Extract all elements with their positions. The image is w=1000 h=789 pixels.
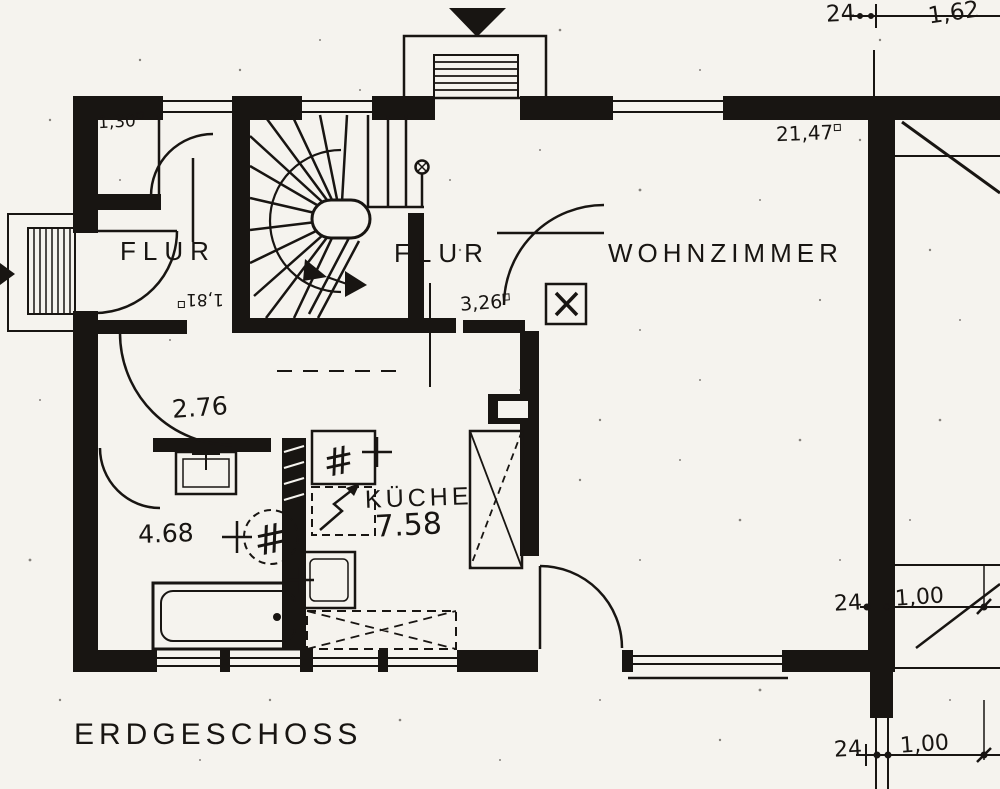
svg-text:#: # [318,437,358,487]
floor-plan-drawing: # # [0,0,1000,789]
side-entrance-porch [0,214,75,331]
room-label-flur-left: FLUR [120,236,216,267]
flue-marker-box [546,284,586,324]
sqm-mark [136,112,143,119]
dim-text-right-span: 1,00 [894,583,945,611]
room-label-wohnzimmer: WOHNZIMMER [608,238,843,269]
floor-title: ERDGESCHOSS [74,718,362,752]
dim-text-top-wall: 24 [825,0,856,27]
entrance-arrow-icon [449,8,506,37]
floor-plan-linework: # # [0,0,1000,789]
area-label-wohnzimmer: 21,47 [776,120,842,146]
sqm-mark [834,124,841,131]
sqm-mark [178,301,185,308]
area-label-abstellraum: 1,30 [98,111,145,133]
area-label-flur-mid: 3,26 [459,290,511,315]
area-label-wc: 2.76 [171,391,229,424]
area-label-bad: 4.68 [138,518,195,549]
dim-text-right-wall: 24 [833,590,862,616]
sqm-mark [503,293,510,300]
area-label-diele: 1,81 [178,289,224,309]
dim-text-bottom-wall: 24 [833,736,862,762]
room-label-flur-mid: FLUR [394,238,490,269]
spiral-stair [250,115,429,318]
dim-text-bottom-span: 1,00 [899,730,950,758]
top-entrance-porch [404,8,546,98]
area-label-kueche: 7.58 [374,506,443,544]
